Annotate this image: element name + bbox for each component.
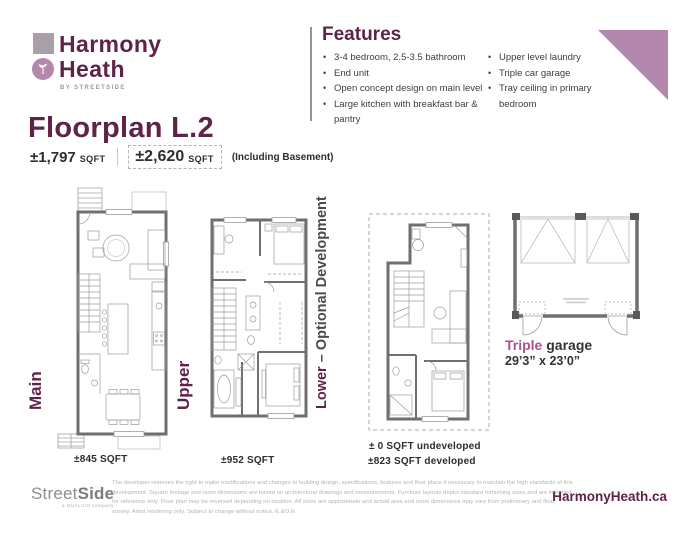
- website-link[interactable]: HarmonyHeath.ca: [552, 489, 667, 504]
- garage-man-doors: [523, 317, 627, 335]
- feature-item: Triple car garage: [499, 66, 611, 82]
- lower-floorplan-drawing: [368, 213, 490, 431]
- main-outer-walls: [78, 212, 166, 434]
- floor-label-lower-accent: Lower: [314, 366, 330, 409]
- main-floorplan-drawing: [54, 186, 172, 450]
- feature-item: 3-4 bedroom, 2.5-3.5 bathroom: [334, 50, 496, 66]
- garage-label: Triple garage: [505, 337, 592, 353]
- floor-label-main: Main: [26, 310, 46, 410]
- streetside-logo-regular: Street: [31, 484, 78, 503]
- streetside-logo: StreetSide: [31, 484, 114, 504]
- garage-outline: [515, 217, 637, 316]
- features-column-2: Upper level laundry Triple car garage Tr…: [499, 50, 611, 112]
- floor-label-upper: Upper: [174, 310, 194, 410]
- sqft-total-value: ±2,620: [135, 148, 184, 166]
- lower-sqft-developed: ±823 SQFT developed: [368, 456, 476, 467]
- leaf-icon: [32, 58, 54, 80]
- brand-tagline: BY STREETSIDE: [60, 85, 126, 91]
- legal-disclaimer: The developer reserves the right to make…: [112, 479, 574, 517]
- sqft-total-box: ±2,620 SQFT: [128, 145, 221, 169]
- leaf-glyph: [36, 62, 50, 76]
- streetside-logo-tagline: a QUALICO company: [62, 503, 114, 508]
- features-title: Features: [322, 24, 401, 46]
- features-column-1: 3-4 bedroom, 2.5-3.5 bathroom End unit O…: [334, 50, 496, 128]
- feature-item: Tray ceiling in primary bedroom: [499, 81, 611, 112]
- sqft-above-grade-value: ±1,797: [30, 149, 76, 166]
- lower-sqft-undeveloped: ± 0 SQFT undeveloped: [369, 441, 481, 452]
- garage-plan-drawing: [505, 206, 647, 338]
- floor-label-lower: Lower – Optional Development: [314, 159, 336, 409]
- page-title: Floorplan L.2: [28, 112, 214, 145]
- feature-item: Upper level laundry: [499, 50, 611, 66]
- streetside-logo-bold: Side: [78, 484, 115, 503]
- feature-item: Large kitchen with breakfast bar & pantr…: [334, 97, 496, 128]
- logo-square-mark: [33, 33, 54, 54]
- garage-label-rest: garage: [542, 337, 592, 353]
- sqft-unit: SQFT: [80, 154, 106, 164]
- main-sqft-caption: ±845 SQFT: [74, 454, 127, 465]
- upper-sqft-caption: ±952 SQFT: [221, 455, 274, 466]
- sqft-summary-row: ±1,797 SQFT ±2,620 SQFT (Including Basem…: [30, 146, 334, 168]
- feature-item: Open concept design on main level: [334, 81, 496, 97]
- brand-name-line1: Harmony: [59, 31, 162, 58]
- floor-label-lower-rest: – Optional Development: [314, 196, 330, 366]
- sqft-divider: [117, 148, 118, 166]
- sqft-total-unit: SQFT: [188, 154, 214, 164]
- brand-name-line2: Heath: [59, 56, 125, 83]
- garage-label-accent: Triple: [505, 337, 542, 353]
- features-divider: [310, 27, 312, 121]
- garage-dimensions: 29’3” x 23’0”: [505, 354, 580, 368]
- lower-outer-walls: [388, 225, 468, 419]
- upper-floorplan-drawing: [202, 212, 317, 426]
- feature-item: End unit: [334, 66, 496, 82]
- flyer-page: Harmony Heath BY STREETSIDE Features 3-4…: [0, 0, 698, 540]
